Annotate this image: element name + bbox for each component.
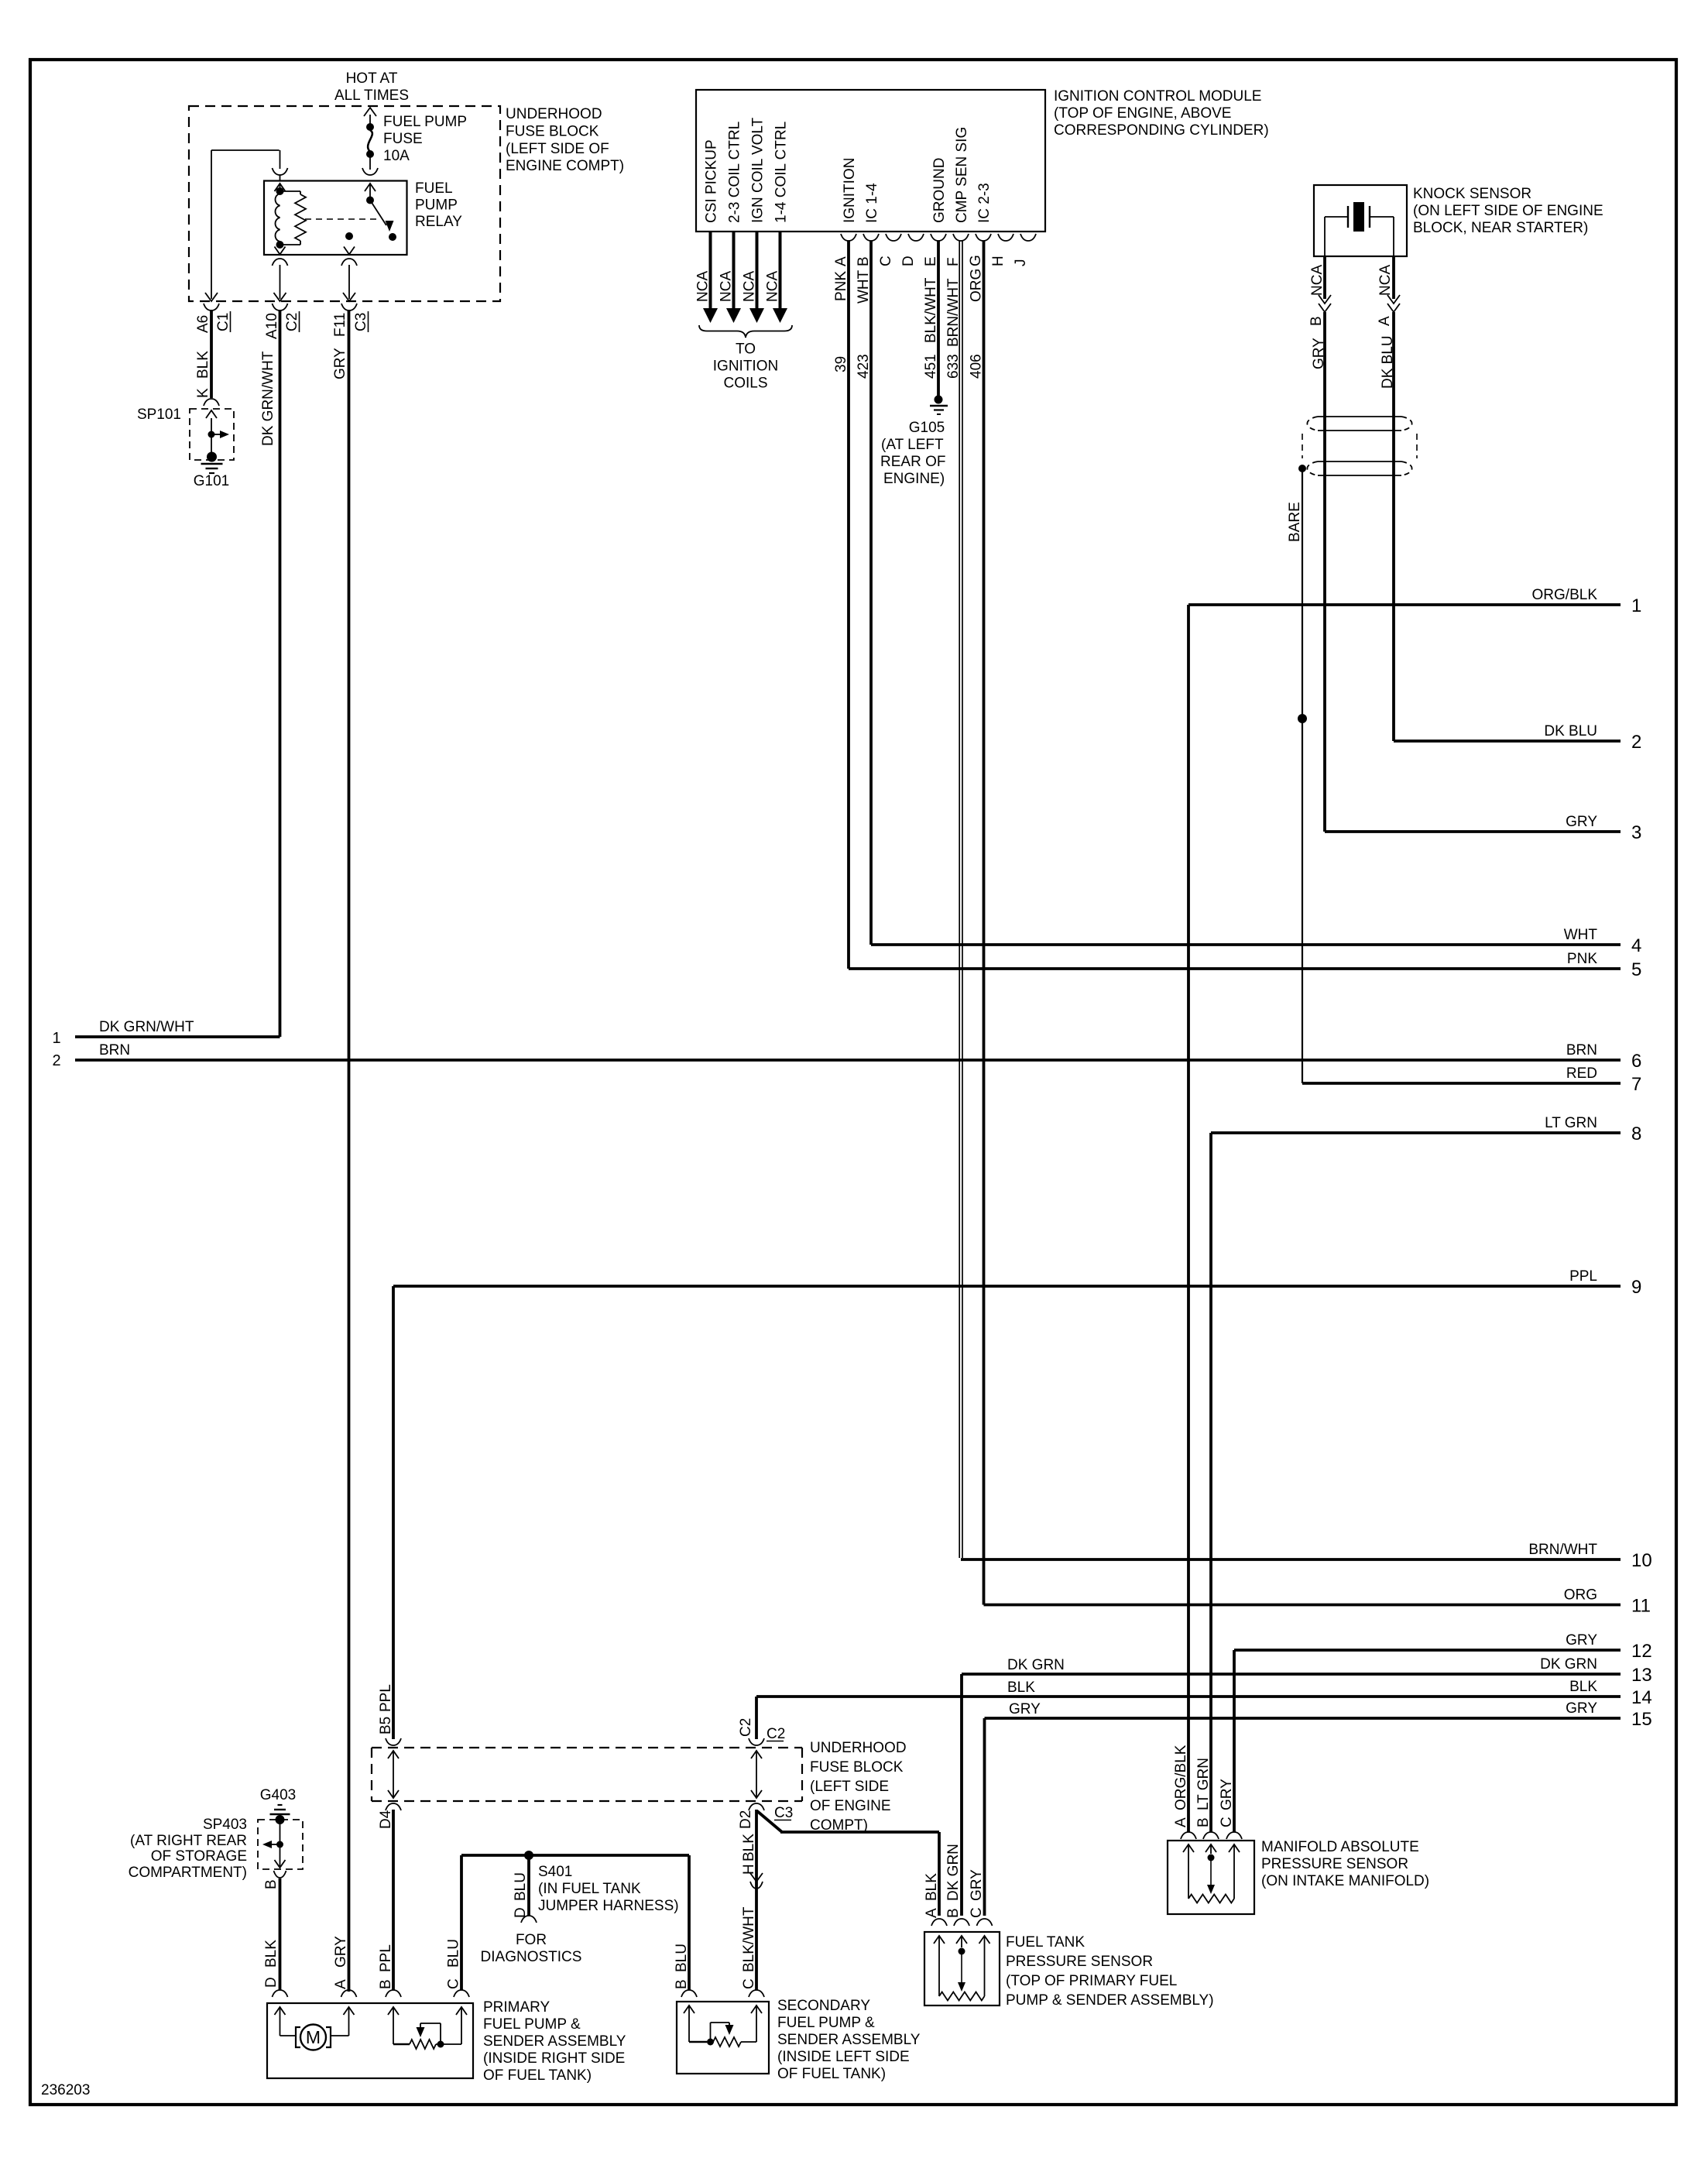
- svg-text:39: 39: [833, 356, 849, 372]
- svg-text:2: 2: [1631, 732, 1641, 753]
- svg-text:10: 10: [1631, 1550, 1652, 1571]
- svg-text:C2: C2: [738, 1718, 754, 1737]
- svg-text:CMP SEN SIG: CMP SEN SIG: [954, 127, 970, 223]
- svg-text:BLOCK, NEAR STARTER): BLOCK, NEAR STARTER): [1413, 220, 1588, 236]
- svg-text:11: 11: [1631, 1596, 1651, 1617]
- svg-text:UNDERHOOD: UNDERHOOD: [506, 106, 602, 122]
- svg-text:COMPARTMENT): COMPARTMENT): [129, 1865, 247, 1881]
- svg-text:ENGINE COMPT): ENGINE COMPT): [506, 158, 624, 174]
- svg-text:C: C: [446, 1978, 462, 1989]
- svg-text:B: B: [378, 1979, 394, 1989]
- svg-text:PRIMARY: PRIMARY: [483, 1999, 550, 2016]
- svg-text:UNDERHOOD: UNDERHOOD: [810, 1740, 907, 1756]
- svg-text:CSI PICKUP: CSI PICKUP: [704, 139, 720, 223]
- svg-text:PUMP & SENDER ASSEMBLY): PUMP & SENDER ASSEMBLY): [1006, 1992, 1214, 2009]
- svg-text:K: K: [195, 388, 211, 398]
- svg-text:BLK: BLK: [1007, 1680, 1035, 1696]
- svg-text:B: B: [945, 1908, 962, 1918]
- svg-text:GRY: GRY: [969, 1869, 985, 1901]
- svg-text:WHT: WHT: [1564, 927, 1598, 943]
- svg-text:CORRESPONDING CYLINDER): CORRESPONDING CYLINDER): [1054, 122, 1269, 139]
- svg-text:DK BLU: DK BLU: [1544, 723, 1597, 739]
- svg-text:B: B: [674, 1979, 690, 1989]
- svg-text:1-4 COIL CTRL: 1-4 COIL CTRL: [773, 122, 790, 223]
- svg-text:BRN/WHT: BRN/WHT: [945, 278, 962, 347]
- svg-text:RELAY: RELAY: [415, 214, 462, 230]
- svg-text:(AT LEFT: (AT LEFT: [881, 437, 944, 453]
- svg-text:M: M: [306, 2027, 321, 2047]
- svg-text:G105: G105: [909, 420, 945, 436]
- svg-text:D: D: [900, 256, 917, 266]
- svg-text:A6: A6: [195, 315, 211, 333]
- svg-text:IGNITION: IGNITION: [713, 359, 778, 375]
- svg-text:OF FUEL TANK): OF FUEL TANK): [777, 2066, 886, 2082]
- svg-text:(IN FUEL TANK: (IN FUEL TANK: [538, 1881, 641, 1897]
- svg-text:DK GRN/WHT: DK GRN/WHT: [99, 1019, 194, 1035]
- svg-text:(INSIDE LEFT SIDE: (INSIDE LEFT SIDE: [777, 2049, 910, 2065]
- svg-text:MANIFOLD ABSOLUTE: MANIFOLD ABSOLUTE: [1261, 1839, 1419, 1855]
- svg-text:G: G: [968, 255, 984, 266]
- svg-text:NCA: NCA: [742, 271, 758, 302]
- svg-text:HOT AT: HOT AT: [346, 70, 398, 87]
- svg-text:LT GRN: LT GRN: [1195, 1758, 1212, 1810]
- svg-text:GRY: GRY: [1009, 1701, 1041, 1717]
- svg-text:IGN COIL VOLT: IGN COIL VOLT: [750, 117, 767, 223]
- svg-text:IGNITION CONTROL MODULE: IGNITION CONTROL MODULE: [1054, 88, 1261, 105]
- svg-text:COILS: COILS: [723, 376, 767, 392]
- svg-text:C3: C3: [774, 1805, 793, 1821]
- svg-text:ENGINE): ENGINE): [883, 471, 945, 487]
- svg-text:PRESSURE SENSOR: PRESSURE SENSOR: [1006, 1954, 1153, 1970]
- svg-text:IGNITION: IGNITION: [842, 158, 858, 223]
- svg-text:633: 633: [945, 354, 962, 379]
- svg-text:FUSE: FUSE: [383, 131, 423, 147]
- svg-text:NCA: NCA: [695, 271, 712, 302]
- svg-text:G101: G101: [194, 473, 229, 489]
- svg-text:9: 9: [1631, 1277, 1641, 1298]
- svg-text:DIAGNOSTICS: DIAGNOSTICS: [481, 1949, 582, 1965]
- svg-text:BRN: BRN: [99, 1042, 130, 1058]
- svg-text:A: A: [1377, 316, 1393, 326]
- svg-text:C: C: [969, 1907, 985, 1918]
- svg-text:(LEFT SIDE OF: (LEFT SIDE OF: [506, 141, 609, 157]
- svg-text:IC 1-4: IC 1-4: [864, 183, 880, 223]
- svg-text:C1: C1: [215, 313, 232, 331]
- svg-text:GRY: GRY: [1566, 814, 1597, 830]
- svg-text:FUEL PUMP &: FUEL PUMP &: [483, 2016, 581, 2033]
- svg-text:(TOP OF PRIMARY FUEL: (TOP OF PRIMARY FUEL: [1006, 1973, 1177, 1989]
- svg-text:(INSIDE RIGHT SIDE: (INSIDE RIGHT SIDE: [483, 2050, 625, 2067]
- svg-text:BRN: BRN: [1566, 1042, 1597, 1058]
- svg-text:C: C: [878, 256, 894, 266]
- svg-text:B: B: [263, 1879, 280, 1889]
- svg-text:F11: F11: [332, 313, 348, 337]
- svg-text:BLU: BLU: [446, 1939, 462, 1968]
- svg-text:GRY: GRY: [332, 348, 348, 379]
- svg-text:15: 15: [1631, 1709, 1652, 1730]
- svg-text:NCA: NCA: [765, 271, 781, 302]
- svg-text:1: 1: [52, 1030, 60, 1047]
- svg-text:BRN/WHT: BRN/WHT: [1528, 1542, 1597, 1558]
- svg-text:BLK/WHT: BLK/WHT: [741, 1906, 757, 1972]
- svg-text:C2: C2: [284, 313, 300, 331]
- svg-text:7: 7: [1631, 1074, 1641, 1095]
- svg-text:10A: 10A: [383, 148, 410, 164]
- svg-text:FUEL: FUEL: [415, 180, 453, 197]
- svg-text:G403: G403: [260, 1787, 296, 1803]
- svg-text:ORG: ORG: [1564, 1587, 1597, 1604]
- svg-text:BLK/WHT: BLK/WHT: [923, 277, 939, 343]
- svg-text:D: D: [513, 1907, 529, 1918]
- svg-text:BLU: BLU: [513, 1872, 529, 1901]
- svg-text:FUEL PUMP &: FUEL PUMP &: [777, 2015, 875, 2031]
- svg-text:FUSE BLOCK: FUSE BLOCK: [810, 1759, 904, 1776]
- svg-text:406: 406: [969, 354, 985, 379]
- svg-text:ORG: ORG: [969, 269, 985, 302]
- svg-text:FOR: FOR: [516, 1932, 547, 1948]
- svg-text:B: B: [856, 256, 872, 266]
- svg-text:451: 451: [923, 354, 939, 379]
- svg-text:FUSE BLOCK: FUSE BLOCK: [506, 123, 599, 139]
- svg-text:PRESSURE SENSOR: PRESSURE SENSOR: [1261, 1856, 1408, 1872]
- svg-text:NCA: NCA: [719, 271, 735, 302]
- svg-text:A: A: [333, 1979, 349, 1989]
- svg-text:BARE: BARE: [1287, 502, 1303, 542]
- svg-text:J: J: [1013, 259, 1029, 267]
- svg-text:D: D: [263, 1977, 280, 1988]
- svg-text:D2: D2: [738, 1810, 754, 1829]
- svg-text:A: A: [833, 256, 849, 266]
- svg-text:WHT: WHT: [856, 269, 872, 304]
- svg-text:LT GRN: LT GRN: [1545, 1115, 1597, 1131]
- svg-text:5: 5: [1631, 959, 1641, 980]
- svg-text:GRY: GRY: [1219, 1779, 1235, 1810]
- svg-text:DK GRN/WHT: DK GRN/WHT: [260, 351, 276, 446]
- svg-text:2: 2: [52, 1052, 60, 1069]
- svg-text:B: B: [1308, 316, 1325, 326]
- svg-text:BLK: BLK: [924, 1873, 940, 1901]
- svg-text:A: A: [1173, 1817, 1189, 1827]
- svg-text:A: A: [924, 1908, 940, 1918]
- svg-text:OF STORAGE: OF STORAGE: [151, 1848, 247, 1865]
- svg-text:FUEL TANK: FUEL TANK: [1006, 1934, 1085, 1951]
- svg-text:REAR OF: REAR OF: [880, 454, 945, 470]
- svg-text:H: H: [990, 256, 1007, 266]
- svg-text:B: B: [1195, 1817, 1212, 1827]
- svg-text:BLK: BLK: [263, 1940, 280, 1968]
- svg-text:GROUND: GROUND: [931, 158, 948, 223]
- svg-text:(TOP OF ENGINE, ABOVE: (TOP OF ENGINE, ABOVE: [1054, 105, 1231, 122]
- svg-text:6: 6: [1631, 1051, 1641, 1072]
- svg-text:PPL: PPL: [1569, 1268, 1597, 1285]
- svg-text:C: C: [741, 1978, 757, 1989]
- svg-text:(AT RIGHT REAR: (AT RIGHT REAR: [130, 1833, 247, 1849]
- svg-text:236203: 236203: [41, 2082, 90, 2098]
- svg-text:FUEL PUMP: FUEL PUMP: [383, 114, 467, 130]
- svg-text:C3: C3: [353, 313, 369, 331]
- svg-text:S401: S401: [538, 1864, 572, 1880]
- svg-text:ALL TIMES: ALL TIMES: [334, 87, 409, 104]
- svg-text:OF ENGINE: OF ENGINE: [810, 1798, 891, 1814]
- svg-text:IC 2-3: IC 2-3: [976, 183, 993, 223]
- svg-text:(ON INTAKE MANIFOLD): (ON INTAKE MANIFOLD): [1261, 1873, 1429, 1889]
- svg-text:1: 1: [1631, 595, 1641, 616]
- svg-text:423: 423: [856, 354, 872, 379]
- svg-text:OF FUEL TANK): OF FUEL TANK): [483, 2067, 592, 2084]
- svg-text:RED: RED: [1566, 1065, 1597, 1082]
- svg-text:PPL: PPL: [378, 1944, 394, 1972]
- svg-text:NCA: NCA: [1377, 265, 1394, 296]
- svg-text:BLK: BLK: [741, 1834, 757, 1861]
- svg-text:ORG/BLK: ORG/BLK: [1532, 587, 1598, 603]
- svg-text:(LEFT SIDE: (LEFT SIDE: [810, 1779, 889, 1795]
- svg-text:BLK: BLK: [195, 351, 211, 379]
- svg-text:H: H: [741, 1864, 757, 1875]
- svg-text:TO: TO: [736, 341, 756, 358]
- svg-text:B5: B5: [378, 1717, 394, 1734]
- svg-text:BLU: BLU: [674, 1944, 690, 1972]
- svg-text:12: 12: [1631, 1641, 1652, 1662]
- svg-text:GRY: GRY: [333, 1936, 349, 1968]
- svg-text:PUMP: PUMP: [415, 197, 458, 214]
- svg-text:A10: A10: [264, 313, 280, 339]
- svg-text:GRY: GRY: [1566, 1632, 1597, 1649]
- svg-text:GRY: GRY: [1566, 1700, 1597, 1717]
- svg-text:KNOCK SENSOR: KNOCK SENSOR: [1413, 186, 1531, 202]
- svg-text:14: 14: [1631, 1687, 1652, 1708]
- svg-text:SP101: SP101: [137, 407, 181, 423]
- svg-text:E: E: [923, 256, 939, 266]
- svg-text:(ON LEFT SIDE OF ENGINE: (ON LEFT SIDE OF ENGINE: [1413, 203, 1603, 219]
- svg-text:NCA: NCA: [1309, 265, 1326, 296]
- svg-text:C2: C2: [767, 1726, 785, 1742]
- svg-text:DK GRN: DK GRN: [1540, 1656, 1597, 1673]
- svg-text:SP403: SP403: [203, 1817, 247, 1833]
- svg-text:SENDER ASSEMBLY: SENDER ASSEMBLY: [483, 2033, 626, 2050]
- svg-text:DK GRN: DK GRN: [945, 1844, 962, 1901]
- svg-text:3: 3: [1631, 822, 1641, 843]
- svg-text:ORG/BLK: ORG/BLK: [1173, 1745, 1189, 1810]
- svg-text:SENDER ASSEMBLY: SENDER ASSEMBLY: [777, 2032, 921, 2048]
- svg-text:DK GRN: DK GRN: [1007, 1657, 1065, 1673]
- svg-text:JUMPER HARNESS): JUMPER HARNESS): [538, 1898, 679, 1914]
- svg-text:PNK: PNK: [833, 271, 849, 301]
- svg-text:2-3 COIL CTRL: 2-3 COIL CTRL: [727, 122, 743, 223]
- svg-text:4: 4: [1631, 935, 1641, 956]
- svg-text:SECONDARY: SECONDARY: [777, 1998, 870, 2014]
- svg-text:C: C: [1219, 1817, 1235, 1827]
- svg-text:8: 8: [1631, 1124, 1641, 1144]
- svg-text:BLK: BLK: [1569, 1679, 1597, 1695]
- svg-text:D4: D4: [378, 1810, 394, 1829]
- svg-text:13: 13: [1631, 1665, 1652, 1686]
- svg-text:PPL: PPL: [378, 1684, 394, 1712]
- svg-text:PNK: PNK: [1567, 951, 1597, 967]
